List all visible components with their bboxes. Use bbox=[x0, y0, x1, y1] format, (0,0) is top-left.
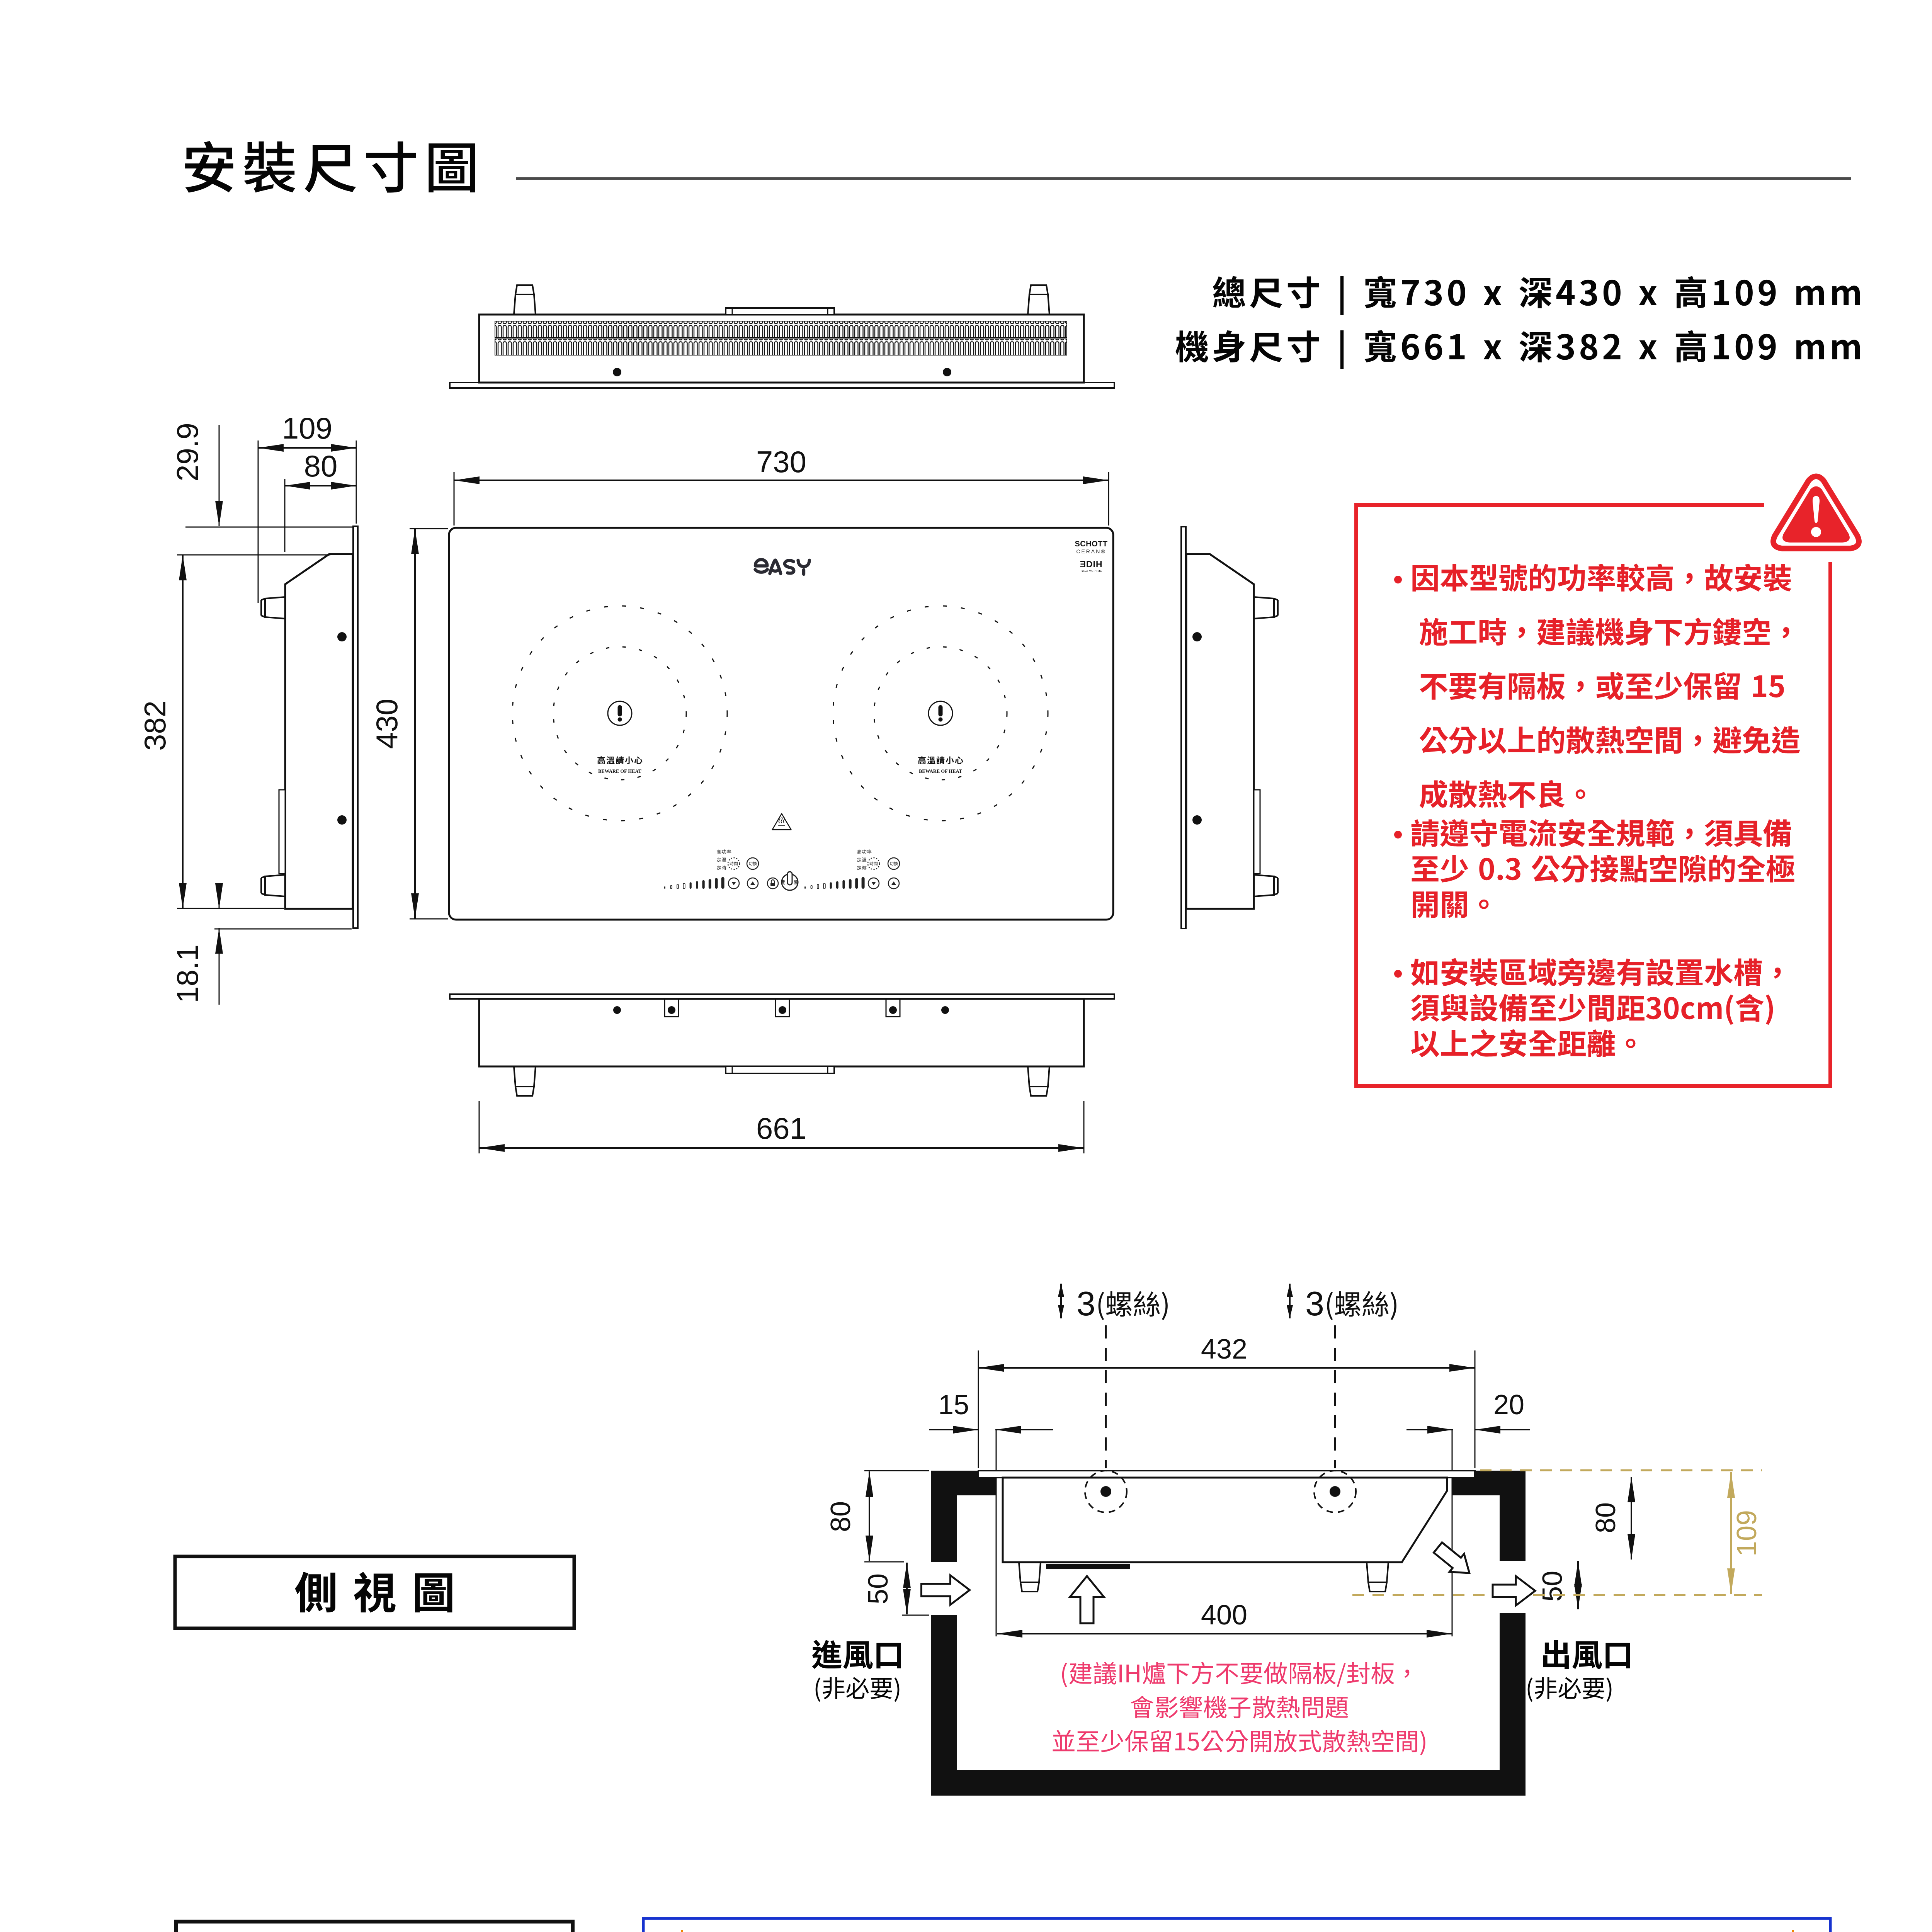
svg-text:20: 20 bbox=[1493, 1389, 1524, 1420]
svg-text:80: 80 bbox=[1590, 1502, 1621, 1533]
svg-text:SCHOTT: SCHOTT bbox=[1075, 540, 1107, 548]
svg-text:CERAN®: CERAN® bbox=[1076, 548, 1106, 554]
svg-text:432: 432 bbox=[1201, 1334, 1247, 1365]
svg-text:430: 430 bbox=[370, 699, 404, 749]
svg-text:80: 80 bbox=[825, 1501, 856, 1532]
svg-text:50: 50 bbox=[863, 1573, 894, 1604]
svg-text:109: 109 bbox=[1731, 1510, 1762, 1556]
svg-text:29.9: 29.9 bbox=[170, 423, 204, 481]
svg-text:661: 661 bbox=[756, 1111, 806, 1145]
svg-text:BEWARE OF HEAT: BEWARE OF HEAT bbox=[598, 769, 641, 774]
svg-text:3: 3 bbox=[1077, 1284, 1095, 1323]
svg-text:400: 400 bbox=[1201, 1600, 1247, 1631]
svg-text:80: 80 bbox=[304, 449, 338, 483]
svg-text:109: 109 bbox=[282, 411, 332, 445]
svg-text:382: 382 bbox=[138, 701, 172, 751]
svg-text:ƎDIH: ƎDIH bbox=[1080, 559, 1103, 569]
svg-text:BEWARE OF HEAT: BEWARE OF HEAT bbox=[919, 769, 962, 774]
svg-text:18.1: 18.1 bbox=[170, 944, 204, 1003]
svg-text:Save Your Life: Save Your Life bbox=[1081, 569, 1102, 573]
svg-text:3: 3 bbox=[1305, 1284, 1324, 1323]
svg-text:730: 730 bbox=[756, 445, 806, 479]
svg-text:50: 50 bbox=[1537, 1571, 1568, 1602]
svg-text:15: 15 bbox=[938, 1389, 969, 1420]
